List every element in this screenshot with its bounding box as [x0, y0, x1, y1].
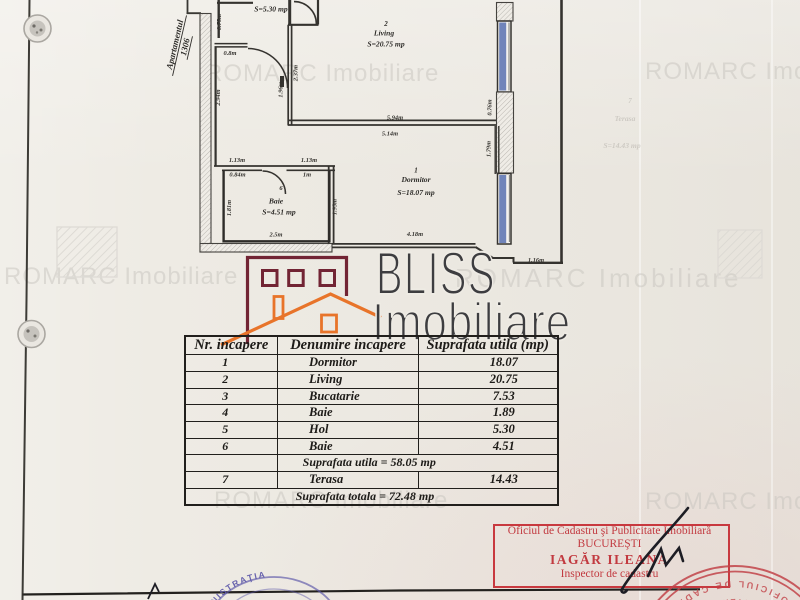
- svg-text:ADMINISTRAŢIA: ADMINISTRAŢIA: [196, 569, 267, 600]
